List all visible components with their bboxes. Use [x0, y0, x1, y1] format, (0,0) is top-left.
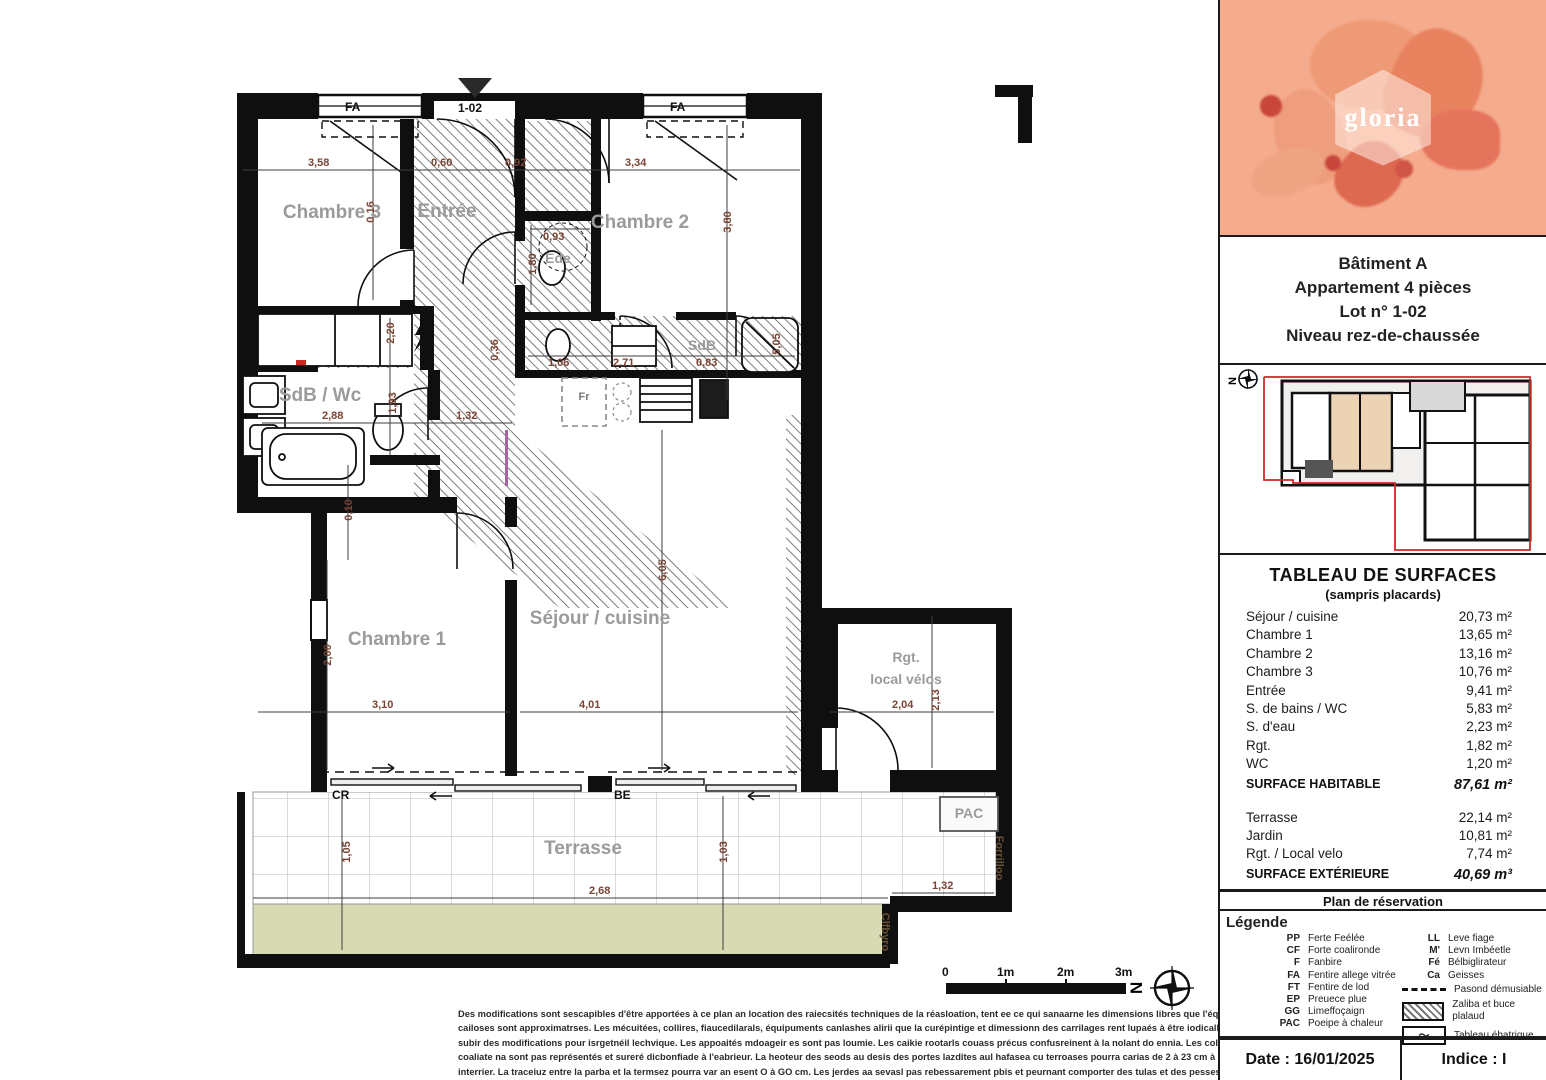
- plan-sheet: FA FA 1-02: [0, 0, 1546, 1080]
- disclaimer-line: interrier. La traceiuz entre la parba et…: [458, 1065, 1216, 1079]
- indice-cell: Indice : I: [1402, 1040, 1546, 1080]
- legend-item: FéBélbiglirateur: [1410, 957, 1546, 969]
- scale-0: 0: [942, 965, 949, 979]
- dim: 2,88: [322, 410, 343, 422]
- dim: 2,13: [930, 689, 942, 710]
- window-fa-right-label: FA: [670, 100, 686, 114]
- dim: 3,58: [308, 157, 329, 169]
- window-fa-left-label: FA: [345, 100, 361, 114]
- table-row: Rgt. / Local velo7,74 m²: [1220, 845, 1546, 863]
- scale-3m: 3m: [1115, 965, 1132, 979]
- dim: 2,04: [892, 699, 914, 711]
- surface-table-title: TABLEAU DE SURFACES: [1220, 565, 1546, 586]
- disclaimer-line: subir des modifications pour isrgetnéil …: [458, 1036, 1216, 1050]
- scale-2m: 2m: [1057, 965, 1074, 979]
- entrance-lot-label: 1-02: [458, 101, 482, 115]
- right-vertical-label: Forrilloo: [993, 836, 1005, 881]
- hatch-box-icon: [1402, 1002, 1444, 1021]
- room-label-sejour: Séjour / cuisine: [530, 608, 670, 629]
- legend-right-column: LLLeve fiage M'Levn Imbéetle FéBélbiglir…: [1410, 933, 1546, 1045]
- dim: 2,68: [589, 885, 610, 897]
- table-row: Chambre 113,65 m²: [1220, 626, 1546, 644]
- table-row: Chambre 310,76 m²: [1220, 663, 1546, 681]
- brand-name: gloria: [1345, 103, 1422, 133]
- legend-symbol-hatch: Zaliba et buce plalaud: [1410, 999, 1546, 1023]
- terrace-grid: [253, 792, 996, 904]
- surface-table: TABLEAU DE SURFACES (sampris placards) S…: [1220, 555, 1546, 891]
- dim: 3,80: [722, 211, 734, 232]
- dim: 1,80: [527, 253, 539, 274]
- door-be-label: BE: [614, 788, 631, 802]
- scale-1m: 1m: [997, 965, 1014, 979]
- room-label-rgt-1: Rgt.: [892, 649, 919, 665]
- legend-title: Légende: [1220, 911, 1546, 933]
- window-fa-right: FA: [643, 95, 747, 180]
- legend-item: M'Levn Imbéetle: [1410, 945, 1546, 957]
- reservation-title: Plan de réservation: [1220, 891, 1546, 911]
- table-row: Entrée9,41 m²: [1220, 682, 1546, 700]
- flower-berry: [1325, 155, 1341, 171]
- room-label-chambre3: Chambre 3: [283, 202, 381, 223]
- disclaimer-line: cailoses sont approximatrses. Les mécuit…: [458, 1021, 1216, 1035]
- room-label-sdb-wc: SdB / Wc: [279, 385, 362, 406]
- logo-block: gloria: [1220, 0, 1546, 237]
- table-row: S. d'eau2,23 m²: [1220, 718, 1546, 736]
- garden-vertical-label: Clfbyro: [879, 913, 891, 952]
- dim: 1,32: [932, 880, 953, 892]
- disclaimer-line: coaliate na sont pas représentés et sure…: [458, 1050, 1216, 1064]
- dim: 0,93: [543, 231, 564, 243]
- key-plan-svg: N: [1220, 365, 1546, 553]
- table-row: Terrasse22,14 m²: [1220, 809, 1546, 827]
- legend-item: PPFerte Feélée: [1270, 933, 1396, 945]
- dim: 1,05: [341, 841, 353, 862]
- disclaimer: Des modifications sont sescapibles d'êtr…: [458, 1007, 1216, 1079]
- room-label-terrasse: Terrasse: [544, 838, 622, 859]
- fridge-label: Fr: [579, 391, 591, 403]
- legend-item: CaGeisses: [1410, 970, 1546, 982]
- dim: 0,83: [696, 357, 717, 369]
- legend: Légende PPFerte Feélée CFForte coalirond…: [1220, 911, 1546, 1038]
- disclaimer-line: Des modifications sont sescapibles d'êtr…: [458, 1007, 1216, 1021]
- key-plan-north-label: N: [1227, 377, 1239, 385]
- legend-item: FAFentire allege vitrée: [1270, 970, 1396, 982]
- dim: 5,05: [771, 333, 783, 354]
- flower-blob: [1420, 110, 1500, 170]
- dim: 0,60: [431, 157, 452, 169]
- flower-berry: [1395, 160, 1413, 178]
- door-cr-label: CR: [332, 788, 350, 802]
- room-label-ede: Ede: [545, 250, 571, 266]
- garden-strip: [253, 904, 890, 956]
- dim: 2,20: [385, 322, 397, 343]
- legend-item: EPPreuece plue: [1270, 994, 1396, 1006]
- surface-habitable-row: SURFACE HABITABLE87,61 m²: [1220, 774, 1546, 793]
- legend-item: CFForte coalironde: [1270, 945, 1396, 957]
- flower-berry: [1260, 95, 1282, 117]
- surface-exterieure-row: SURFACE EXTÉRIEURE40,69 m³: [1220, 864, 1546, 883]
- room-label-sdb-strip: SdB: [688, 337, 716, 353]
- dim: 0,36: [489, 339, 501, 360]
- room-label-chambre2: Chambre 2: [591, 212, 689, 233]
- table-row: WC1,20 m²: [1220, 755, 1546, 773]
- key-plan: N: [1220, 365, 1546, 555]
- scale-bar: 0 1m 2m 3m: [942, 965, 1132, 994]
- room-label-rgt-2: local vélos: [870, 671, 942, 687]
- dim: 6,05: [657, 559, 669, 580]
- room-label-chambre1: Chambre 1: [348, 629, 447, 650]
- dim: 2,71: [613, 357, 634, 369]
- dim: 0,10: [343, 499, 355, 520]
- legend-item: PACPoeipe à chaleur: [1270, 1018, 1396, 1030]
- dim: 1,32: [456, 410, 477, 422]
- level-name: Niveau rez-de-chaussée: [1286, 326, 1480, 346]
- legend-left-column: PPFerte Feélée CFForte coalironde FFanbi…: [1270, 933, 1396, 1031]
- legend-item: FFanbire: [1270, 957, 1396, 969]
- unit-header: Bâtiment A Appartement 4 pièces Lot n° 1…: [1220, 237, 1546, 365]
- north-label: N: [1127, 982, 1146, 994]
- building-name: Bâtiment A: [1338, 254, 1427, 274]
- dim: 3,10: [372, 699, 393, 711]
- sidebar: gloria Bâtiment A Appartement 4 pièces L…: [1218, 0, 1546, 1080]
- surface-table-subtitle: (sampris placards): [1220, 587, 1546, 602]
- room-label-entree: Entrée: [417, 201, 476, 222]
- legend-item: FTFentire de lod: [1270, 982, 1396, 994]
- dim: 1,93: [387, 392, 399, 413]
- north-compass: N: [1127, 966, 1194, 1010]
- dim: 2,00: [322, 644, 334, 665]
- dim: 0,92: [505, 157, 526, 169]
- dim: 3,34: [625, 157, 647, 169]
- table-row: Jardin10,81 m²: [1220, 827, 1546, 845]
- floor-plan-svg: FA FA 1-02: [0, 0, 1218, 1080]
- apartment-type: Appartement 4 pièces: [1295, 278, 1472, 298]
- table-row: S. de bains / WC5,83 m²: [1220, 700, 1546, 718]
- dim: 4,01: [579, 699, 600, 711]
- dim: 1,03: [718, 841, 730, 862]
- duct-hatch: [786, 415, 801, 775]
- table-row: Rgt.1,82 m²: [1220, 737, 1546, 755]
- legend-item: GGLimeffoçaign: [1270, 1006, 1396, 1018]
- date-cell: Date : 16/01/2025: [1220, 1040, 1402, 1080]
- title-block-footer: Date : 16/01/2025 Indice : I: [1220, 1038, 1546, 1080]
- dashed-line-icon: [1402, 988, 1446, 991]
- table-row: Séjour / cuisine20,73 m²: [1220, 608, 1546, 626]
- pac-label: PAC: [955, 805, 984, 821]
- dim: 1,06: [548, 357, 569, 369]
- legend-item: LLLeve fiage: [1410, 933, 1546, 945]
- table-row: Chambre 213,16 m²: [1220, 645, 1546, 663]
- legend-symbol-dashed: Pasond démusiable: [1410, 984, 1546, 996]
- lot-number: Lot n° 1-02: [1339, 302, 1426, 322]
